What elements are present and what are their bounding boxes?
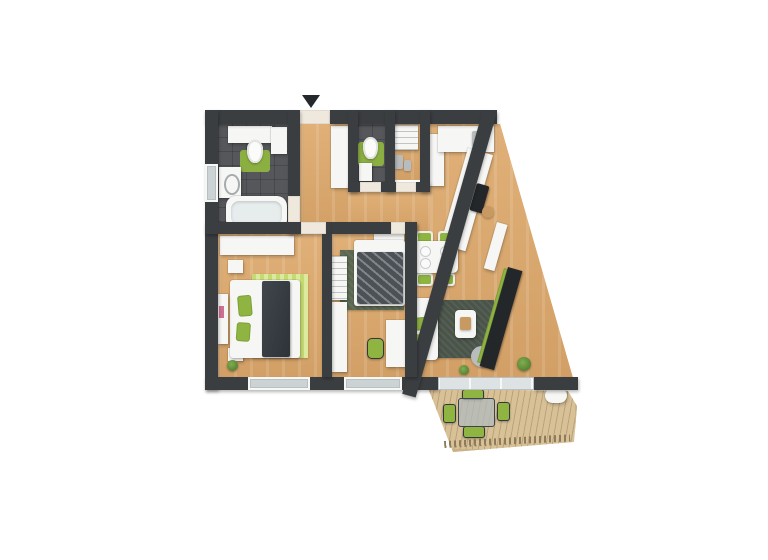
floor-plan-canvas: [0, 0, 768, 560]
wall-wc-west: [348, 110, 358, 192]
storage-door: [396, 182, 416, 192]
wc-door: [360, 182, 381, 192]
bedroom-plant: [227, 360, 238, 371]
bed-pillow-1: [237, 295, 253, 317]
dresser-accent: [219, 306, 224, 318]
wall-kids-east: [405, 222, 417, 377]
bedroom-window-south: [248, 377, 310, 390]
kids-blanket: [357, 252, 403, 304]
living-plant: [517, 357, 531, 371]
terrace-chair-right: [497, 402, 510, 421]
terrace-chair-bottom: [463, 426, 485, 438]
kids-shelf: [330, 256, 347, 300]
bed-pillow-2: [236, 322, 251, 342]
wall-wc-east: [385, 110, 395, 192]
bathroom-cabinet: [271, 127, 287, 154]
wc-basin: [359, 163, 372, 181]
bed-blanket: [262, 281, 290, 357]
wc-toilet: [363, 137, 378, 159]
hall-wardrobe: [331, 126, 348, 188]
bathroom-toilet: [247, 140, 263, 163]
wall-storage-east: [420, 110, 430, 192]
terrace-chair-left: [443, 404, 456, 423]
kids-chair: [367, 338, 384, 359]
bedroom-dresser: [218, 294, 228, 344]
storage-shelf: [392, 125, 418, 150]
bedroom-door: [301, 222, 326, 234]
kitchen-stool: [482, 206, 494, 218]
wall-left: [205, 110, 218, 390]
kids-window-south: [344, 377, 402, 390]
bathroom-door: [288, 196, 300, 224]
wall-kids-west: [322, 234, 332, 377]
entrance-arrow: [302, 95, 320, 108]
bedroom-wardrobe: [220, 236, 294, 255]
coffee-tray: [460, 317, 471, 330]
terrace-table: [458, 398, 495, 427]
bathroom-window-west: [205, 164, 218, 202]
plate-3: [421, 259, 430, 268]
apartment-floor-plan: [0, 0, 768, 560]
wall-top-left: [205, 110, 292, 124]
wall-bottom-right: [534, 377, 578, 390]
door-plant: [459, 365, 469, 375]
storage-item-2: [404, 160, 411, 171]
terrace-lounger: [545, 388, 567, 403]
storage-item-1: [394, 155, 403, 169]
dining-chair-3: [416, 273, 433, 286]
washing-machine: [219, 167, 241, 198]
nightstand-north: [228, 260, 243, 273]
plate-1: [421, 247, 430, 256]
kids-desk: [386, 320, 407, 367]
terrace-slider: [438, 377, 534, 390]
